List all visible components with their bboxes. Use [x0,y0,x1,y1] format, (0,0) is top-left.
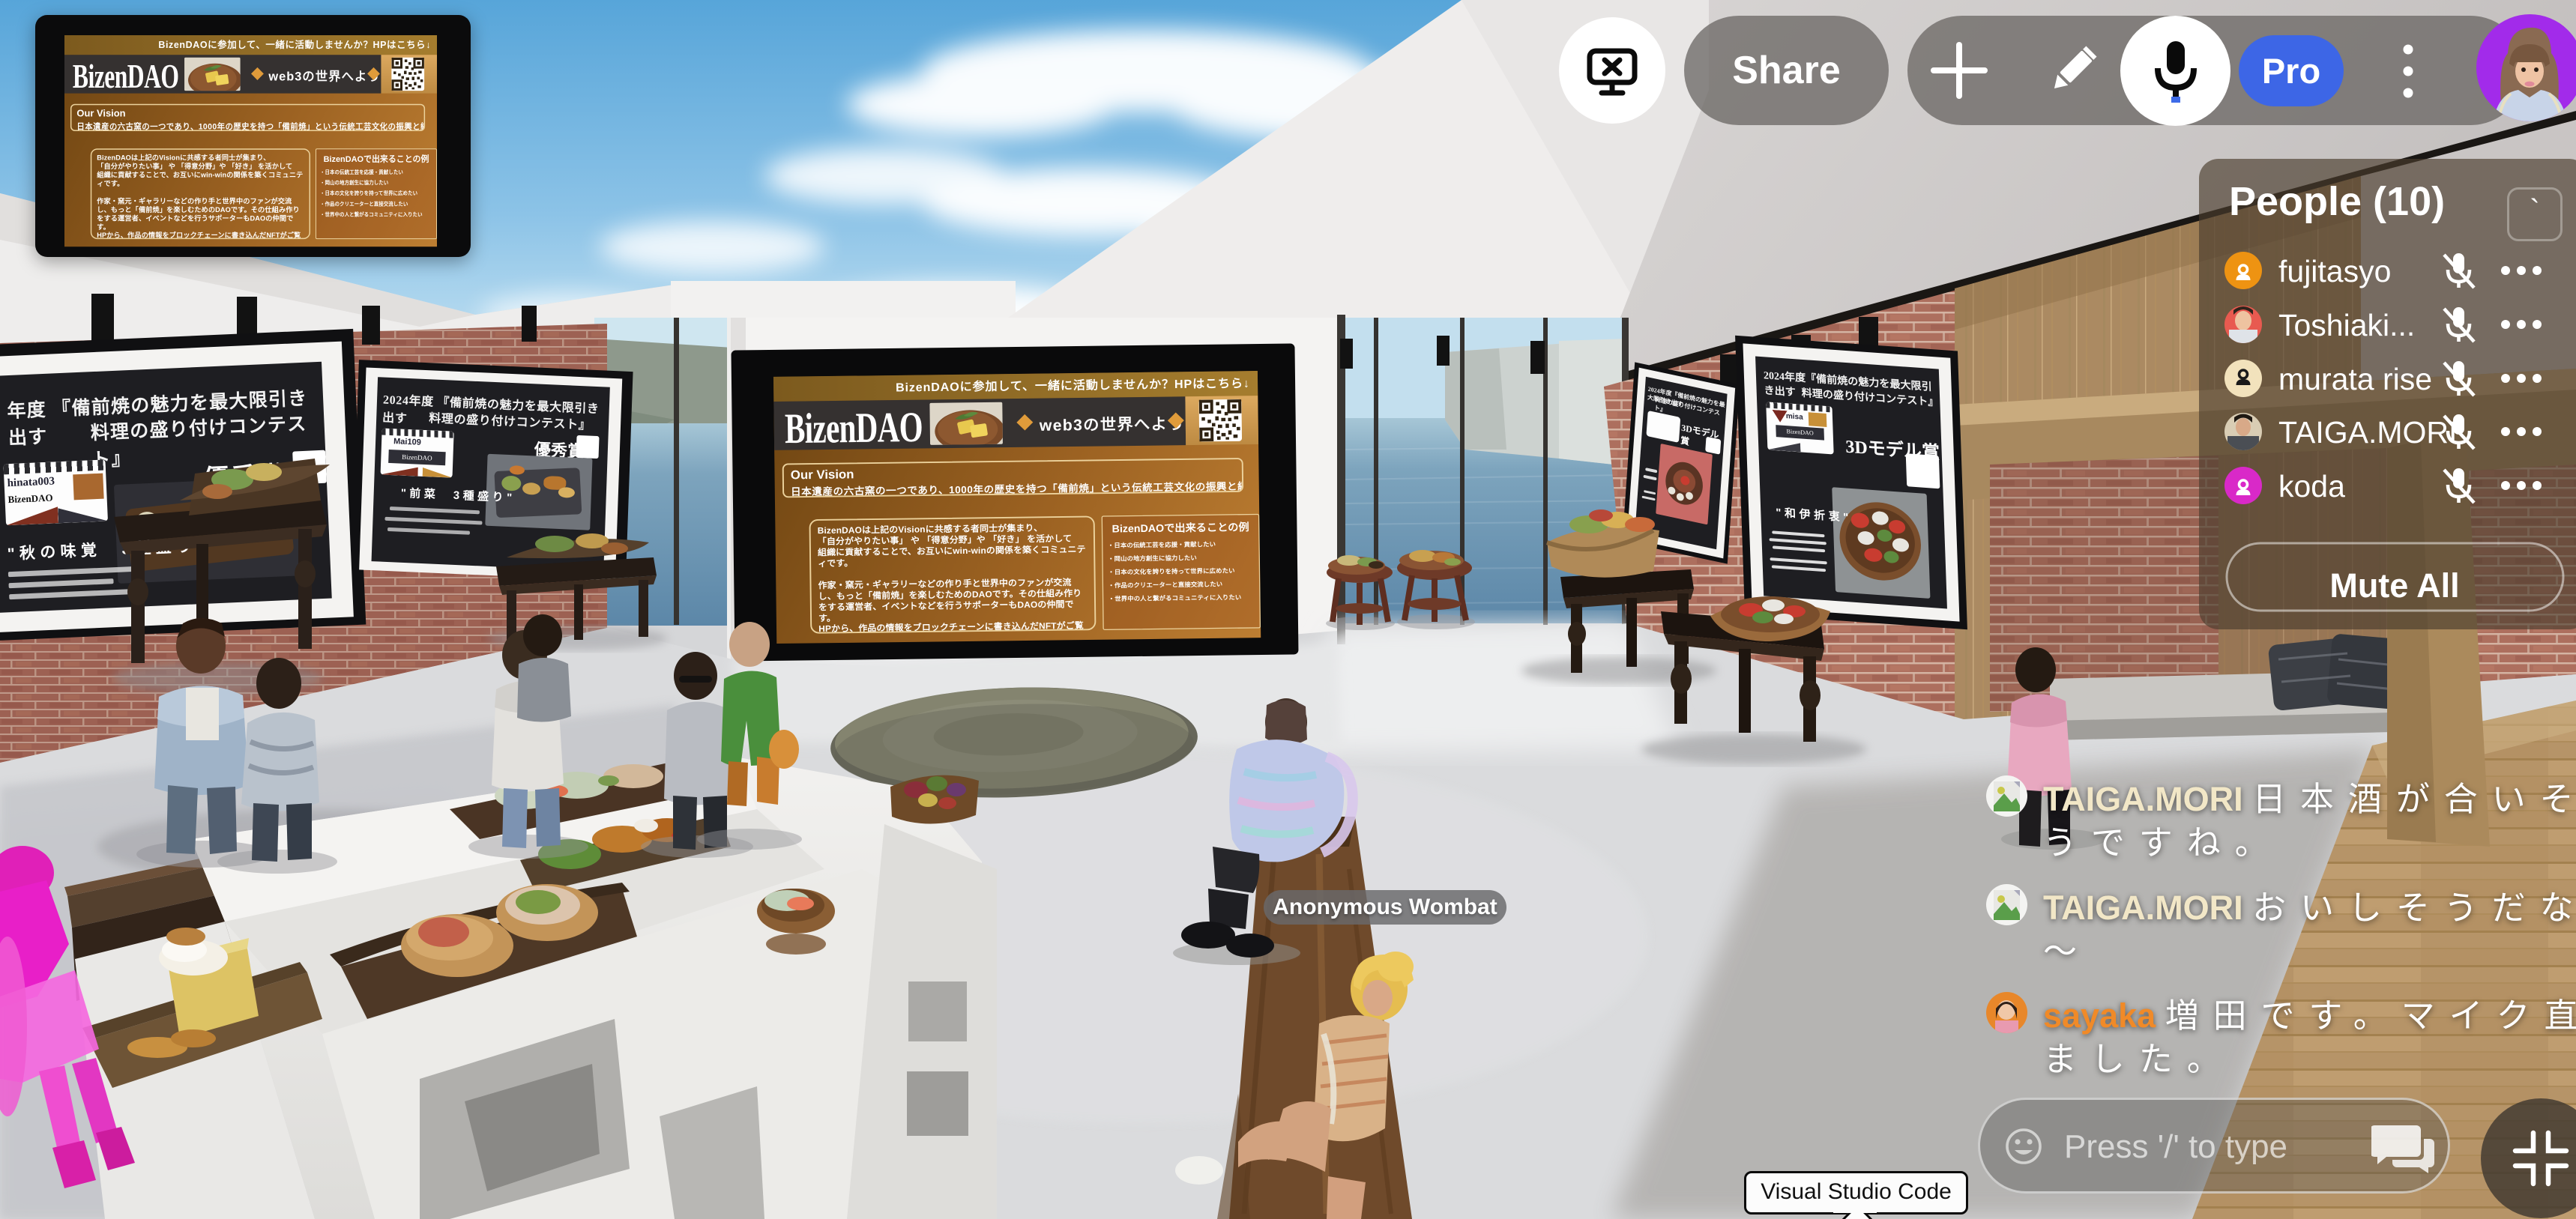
svg-text:Mute All: Mute All [2329,566,2459,605]
svg-text:TAIGA.MORI: TAIGA.MORI [2278,415,2457,450]
svg-text:Toshiaki...: Toshiaki... [2278,308,2415,342]
svg-text:murata rise: murata rise [2278,362,2432,396]
svg-text:fujitasyo: fujitasyo [2278,254,2391,288]
svg-text:koda: koda [2278,469,2345,503]
